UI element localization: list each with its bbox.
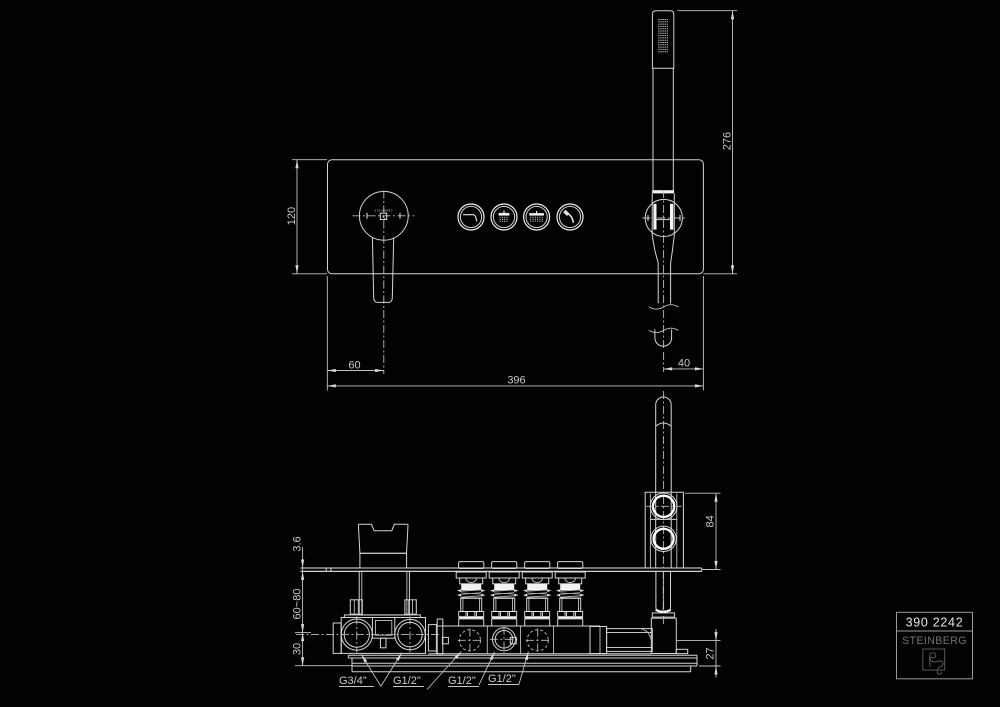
svg-text:60~80: 60~80 bbox=[291, 589, 303, 620]
svg-text:60: 60 bbox=[348, 359, 360, 371]
svg-text:27: 27 bbox=[705, 647, 717, 659]
svg-text:276: 276 bbox=[721, 132, 733, 150]
svg-text:30: 30 bbox=[291, 643, 303, 655]
svg-text:40: 40 bbox=[678, 358, 690, 370]
svg-text:120: 120 bbox=[286, 207, 298, 225]
svg-text:STEINBERG: STEINBERG bbox=[902, 635, 967, 647]
svg-text:G1/2": G1/2" bbox=[393, 675, 421, 687]
svg-text:3.6: 3.6 bbox=[291, 536, 303, 551]
svg-text:G1/2": G1/2" bbox=[448, 675, 476, 687]
svg-text:G1/2": G1/2" bbox=[488, 673, 516, 685]
svg-text:390 2242: 390 2242 bbox=[906, 615, 964, 629]
svg-text:G3/4": G3/4" bbox=[339, 675, 367, 687]
svg-text:84: 84 bbox=[705, 515, 717, 527]
svg-text:396: 396 bbox=[507, 375, 525, 387]
